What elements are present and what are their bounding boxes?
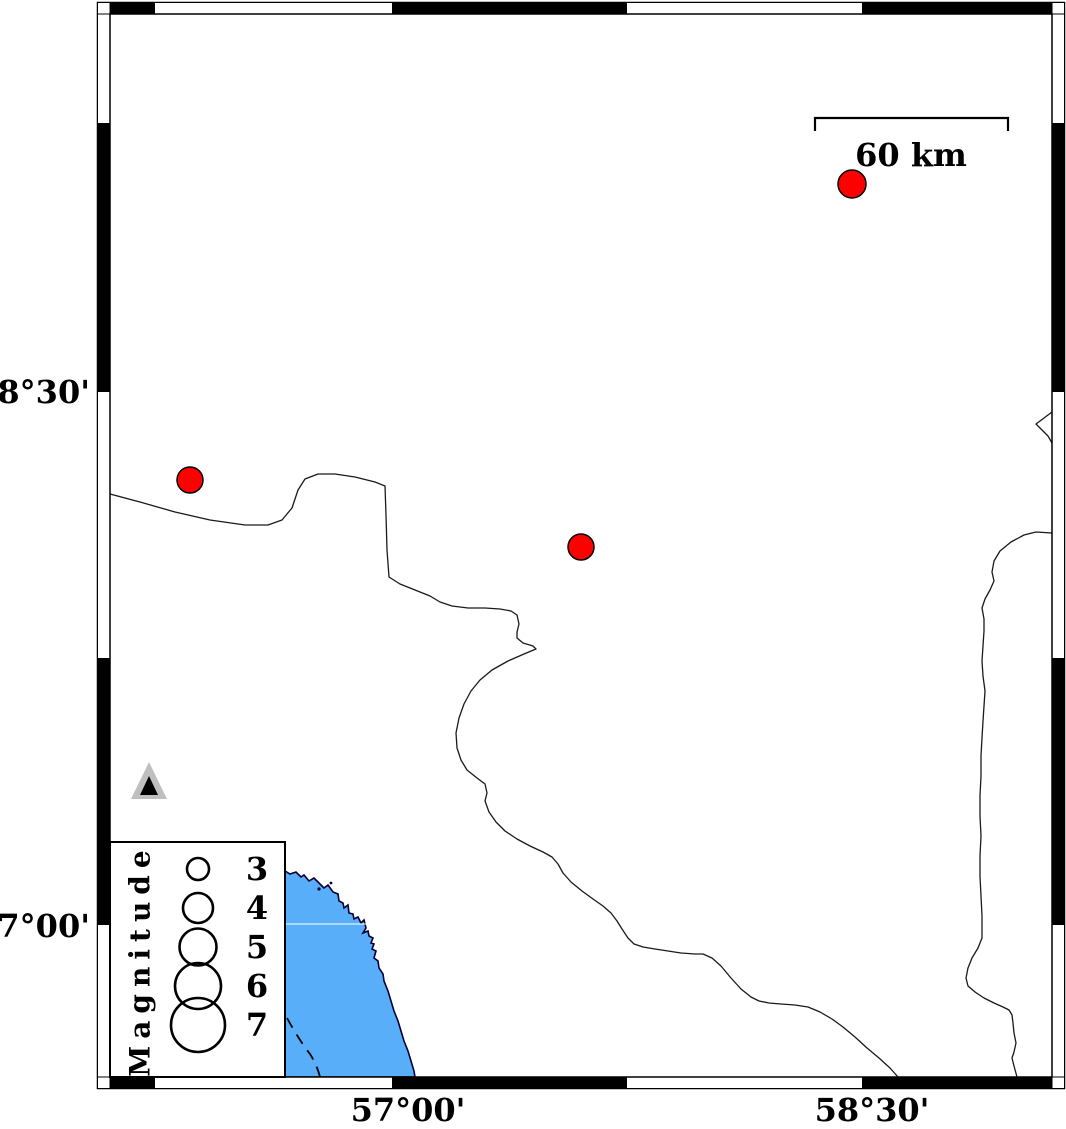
frame-corner-tr: [1052, 3, 1065, 15]
islet: [317, 887, 320, 890]
frame-corner-bl: [98, 1077, 111, 1089]
legend-entry-label: 6: [246, 967, 268, 1005]
longitude-label: 58°30': [815, 1091, 930, 1125]
latitude-label: 27°00': [0, 907, 90, 945]
legend-entry-label: 4: [246, 889, 268, 927]
longitude-label: 57°00': [351, 1091, 466, 1125]
frame-corner-tl: [98, 3, 111, 15]
earthquake-marker: [177, 467, 203, 493]
earthquake-marker: [568, 534, 594, 560]
frame-corner-br: [1052, 1077, 1065, 1089]
legend-title: Magnitude: [124, 843, 157, 1076]
legend-entry-label: 7: [246, 1006, 268, 1044]
legend-entry-label: 3: [246, 850, 268, 888]
map-canvas: 60 km Magnitude 34567 28°30' 27°00' 57°0…: [0, 0, 1066, 1125]
magnitude-legend: Magnitude 34567: [110, 842, 285, 1077]
islet: [330, 882, 333, 885]
earthquake-marker: [838, 170, 866, 198]
latitude-label: 28°30': [0, 373, 90, 411]
map-figure: 60 km Magnitude 34567 28°30' 27°00' 57°0…: [0, 0, 1066, 1125]
legend-entry-label: 5: [246, 928, 268, 966]
scale-bar-label: 60 km: [855, 136, 967, 174]
